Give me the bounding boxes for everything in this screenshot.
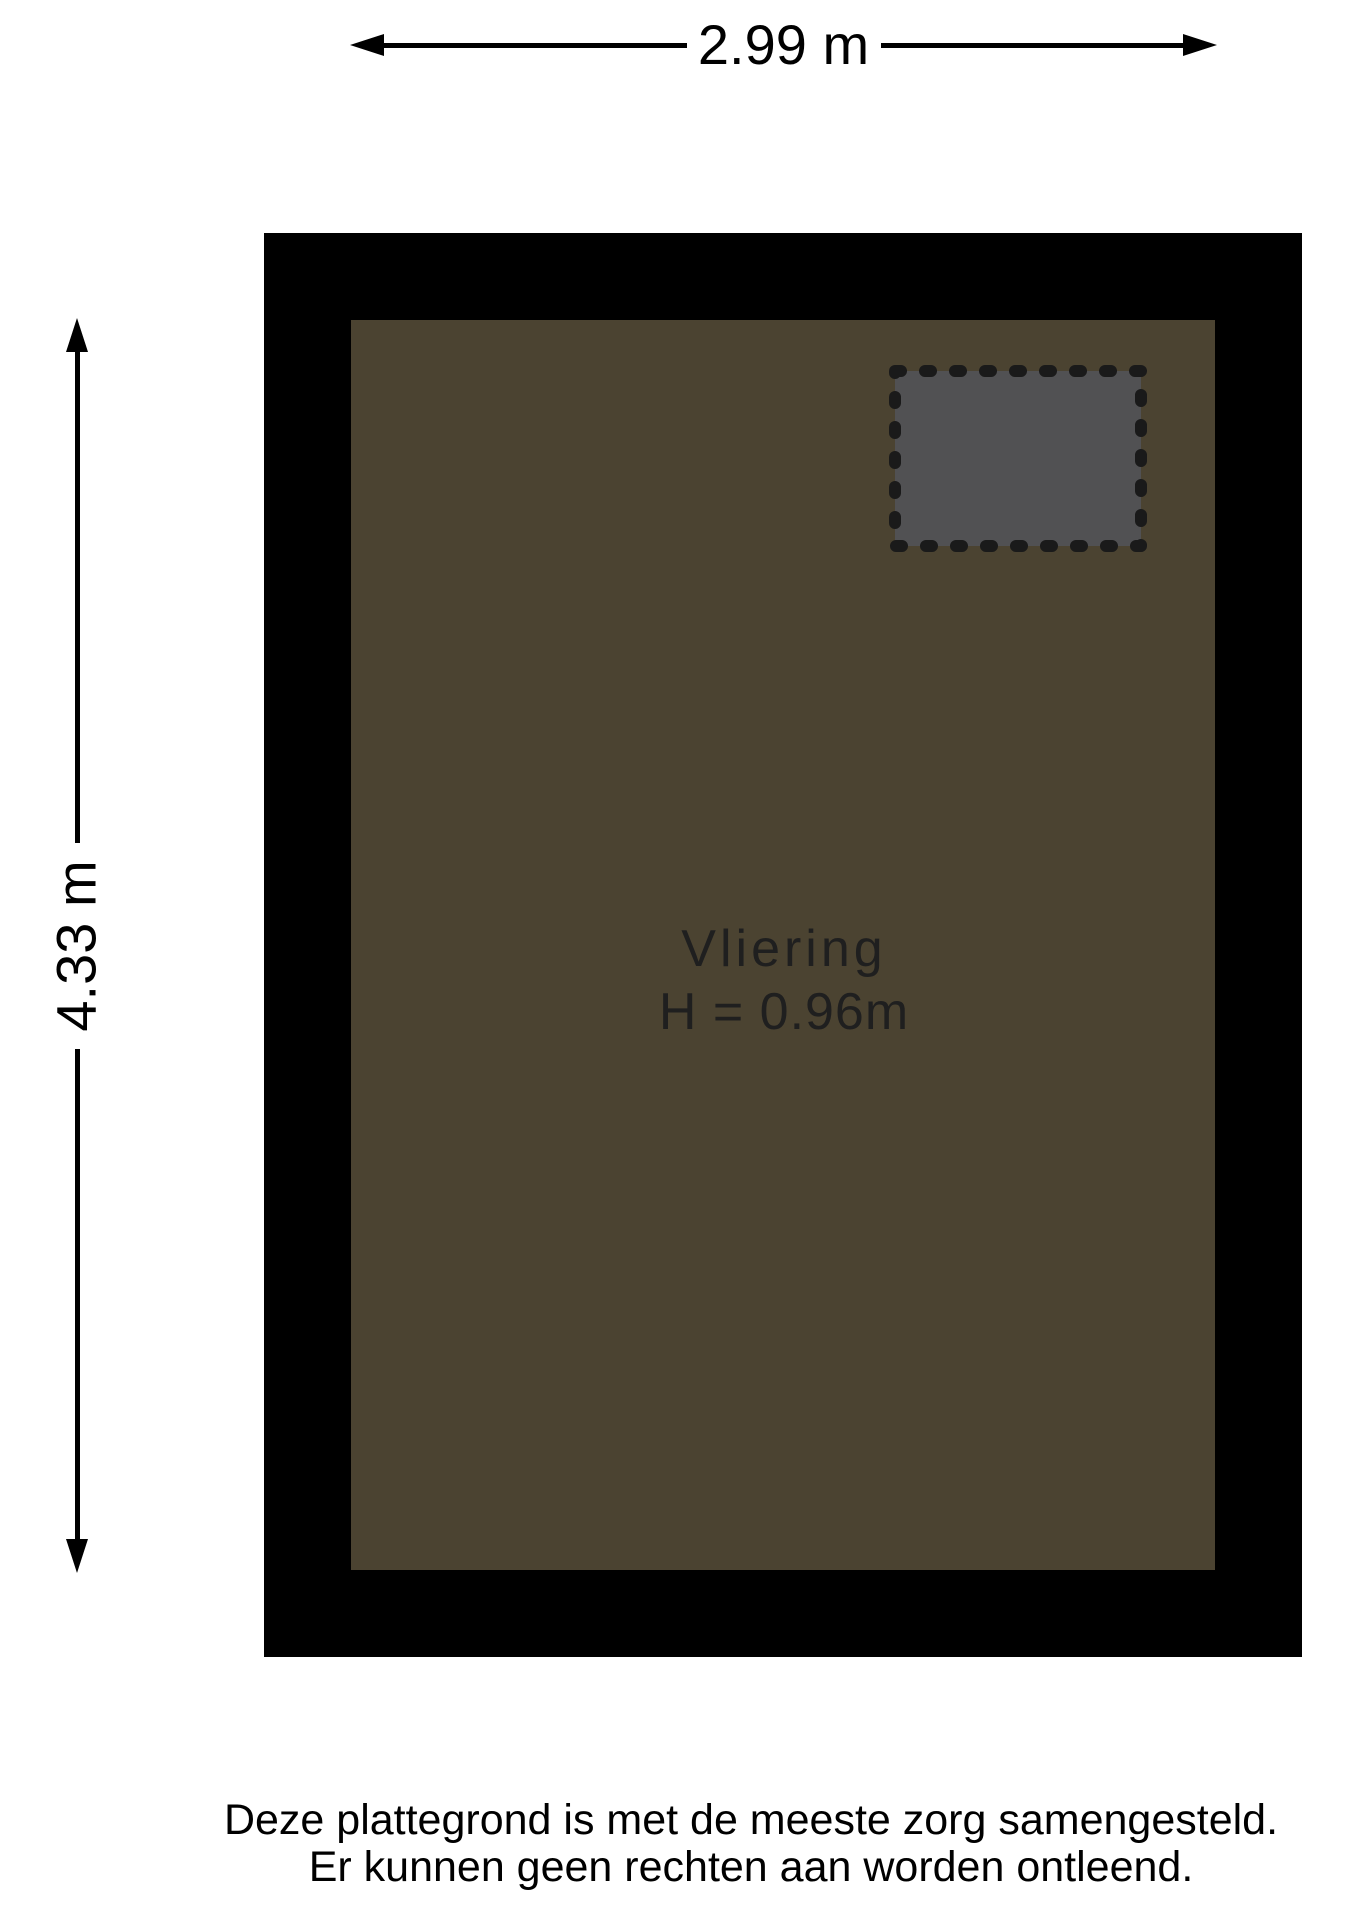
width-dimension: 2.99 m xyxy=(350,23,1217,67)
arrow-down-icon xyxy=(66,1539,88,1573)
disclaimer-line-2: Er kunnen geen rechten aan worden ontlee… xyxy=(151,1844,1351,1891)
room-height-label: H = 0.96m xyxy=(484,981,1084,1044)
dimension-line-right xyxy=(881,43,1184,48)
dimension-line-left xyxy=(384,43,687,48)
height-dimension-label: 4.33 m xyxy=(49,860,105,1031)
height-dimension-label-box: 4.33 m xyxy=(55,843,99,1049)
height-dimension: 4.33 m xyxy=(55,318,99,1573)
arrow-right-icon xyxy=(1183,34,1217,56)
arrow-left-icon xyxy=(350,34,384,56)
floorplan-page: 2.99 m 4.33 m Vliering H = 0.96m Deze pl… xyxy=(0,0,1358,1920)
disclaimer: Deze plattegrond is met de meeste zorg s… xyxy=(151,1797,1351,1891)
dimension-line-top xyxy=(75,352,80,843)
arrow-up-icon xyxy=(66,318,88,352)
disclaimer-line-1: Deze plattegrond is met de meeste zorg s… xyxy=(151,1797,1351,1844)
room-name: Vliering xyxy=(484,918,1084,981)
loft-hatch-icon xyxy=(889,365,1147,552)
room-label: Vliering H = 0.96m xyxy=(484,918,1084,1044)
width-dimension-label: 2.99 m xyxy=(687,17,881,73)
dimension-line-bottom xyxy=(75,1049,80,1540)
